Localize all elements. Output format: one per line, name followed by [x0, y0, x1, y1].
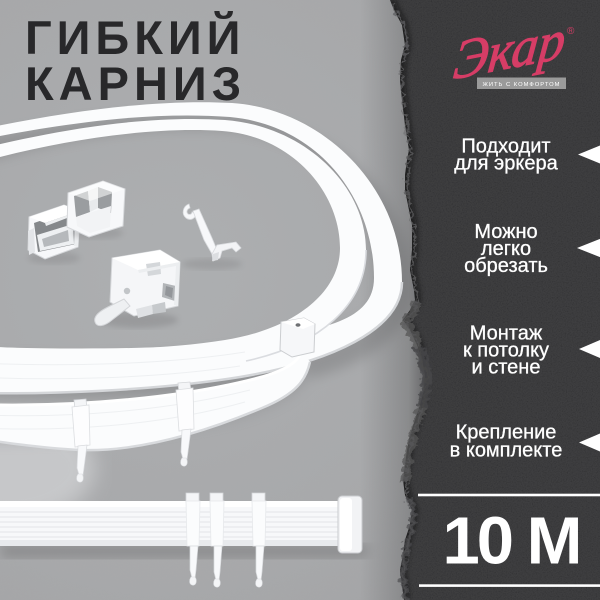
svg-text:обрезать: обрезать [464, 255, 548, 277]
svg-text:КАРНИЗ: КАРНИЗ [25, 57, 246, 110]
svg-text:10 М: 10 М [443, 504, 580, 579]
svg-text:в комплекте: в комплекте [450, 440, 563, 462]
svg-text:и стене: и стене [472, 357, 541, 379]
svg-text:®: ® [567, 26, 575, 37]
svg-text:ЖИТЬ С КОМФОРТОМ: ЖИТЬ С КОМФОРТОМ [483, 82, 561, 88]
svg-text:для эркера: для эркера [454, 152, 558, 174]
